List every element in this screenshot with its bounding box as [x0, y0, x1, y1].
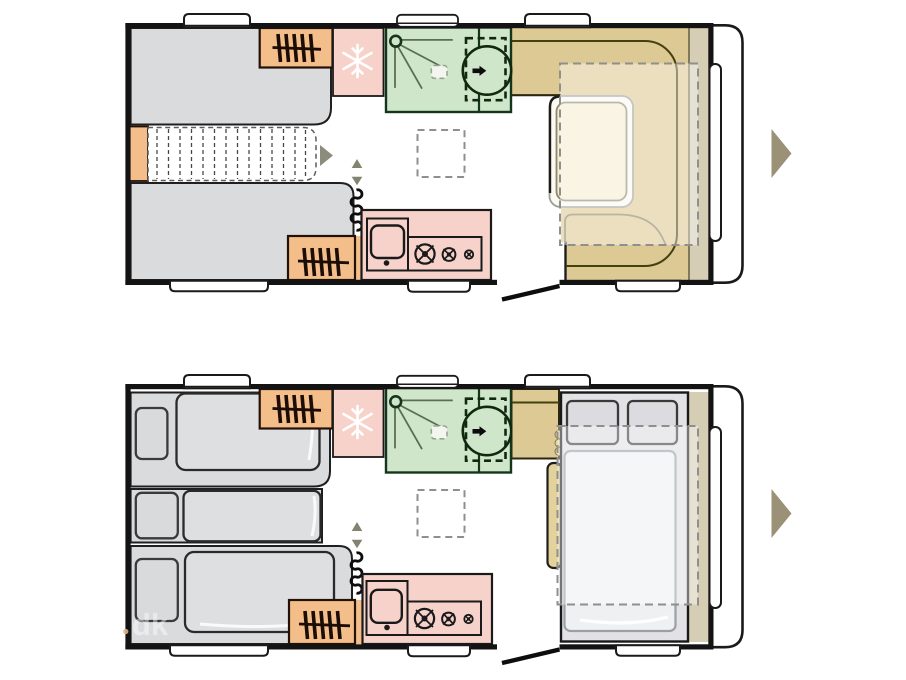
svg-text:dk: dk	[132, 607, 169, 642]
